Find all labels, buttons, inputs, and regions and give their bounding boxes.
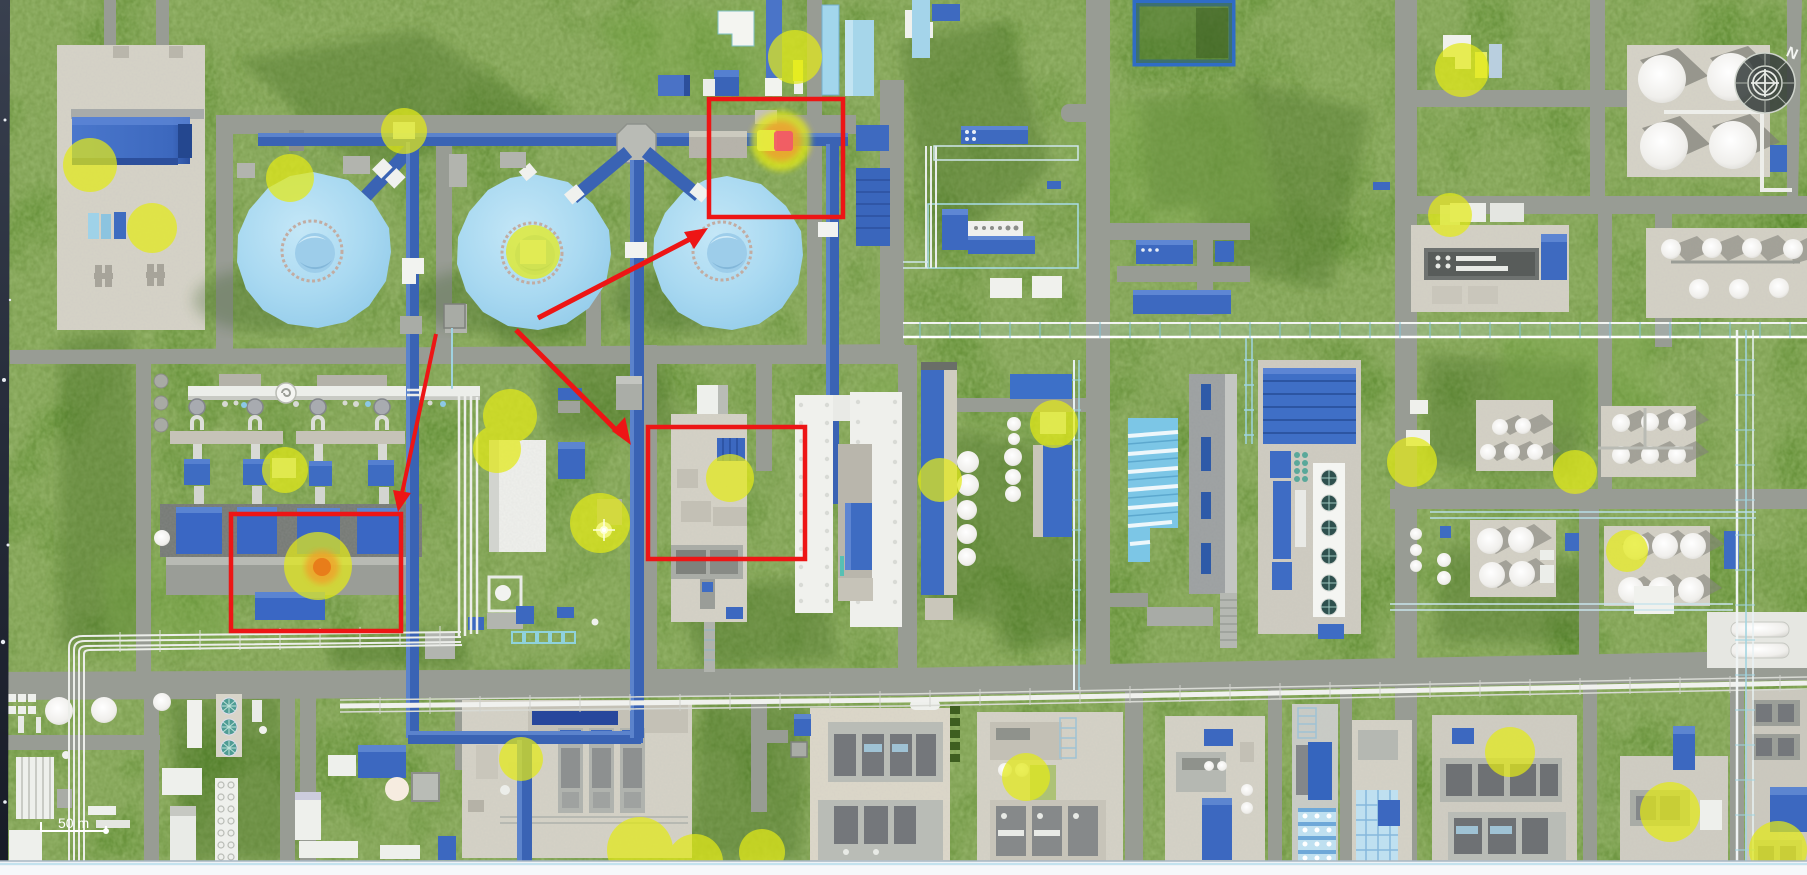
svg-text:50 m: 50 m bbox=[58, 815, 89, 831]
